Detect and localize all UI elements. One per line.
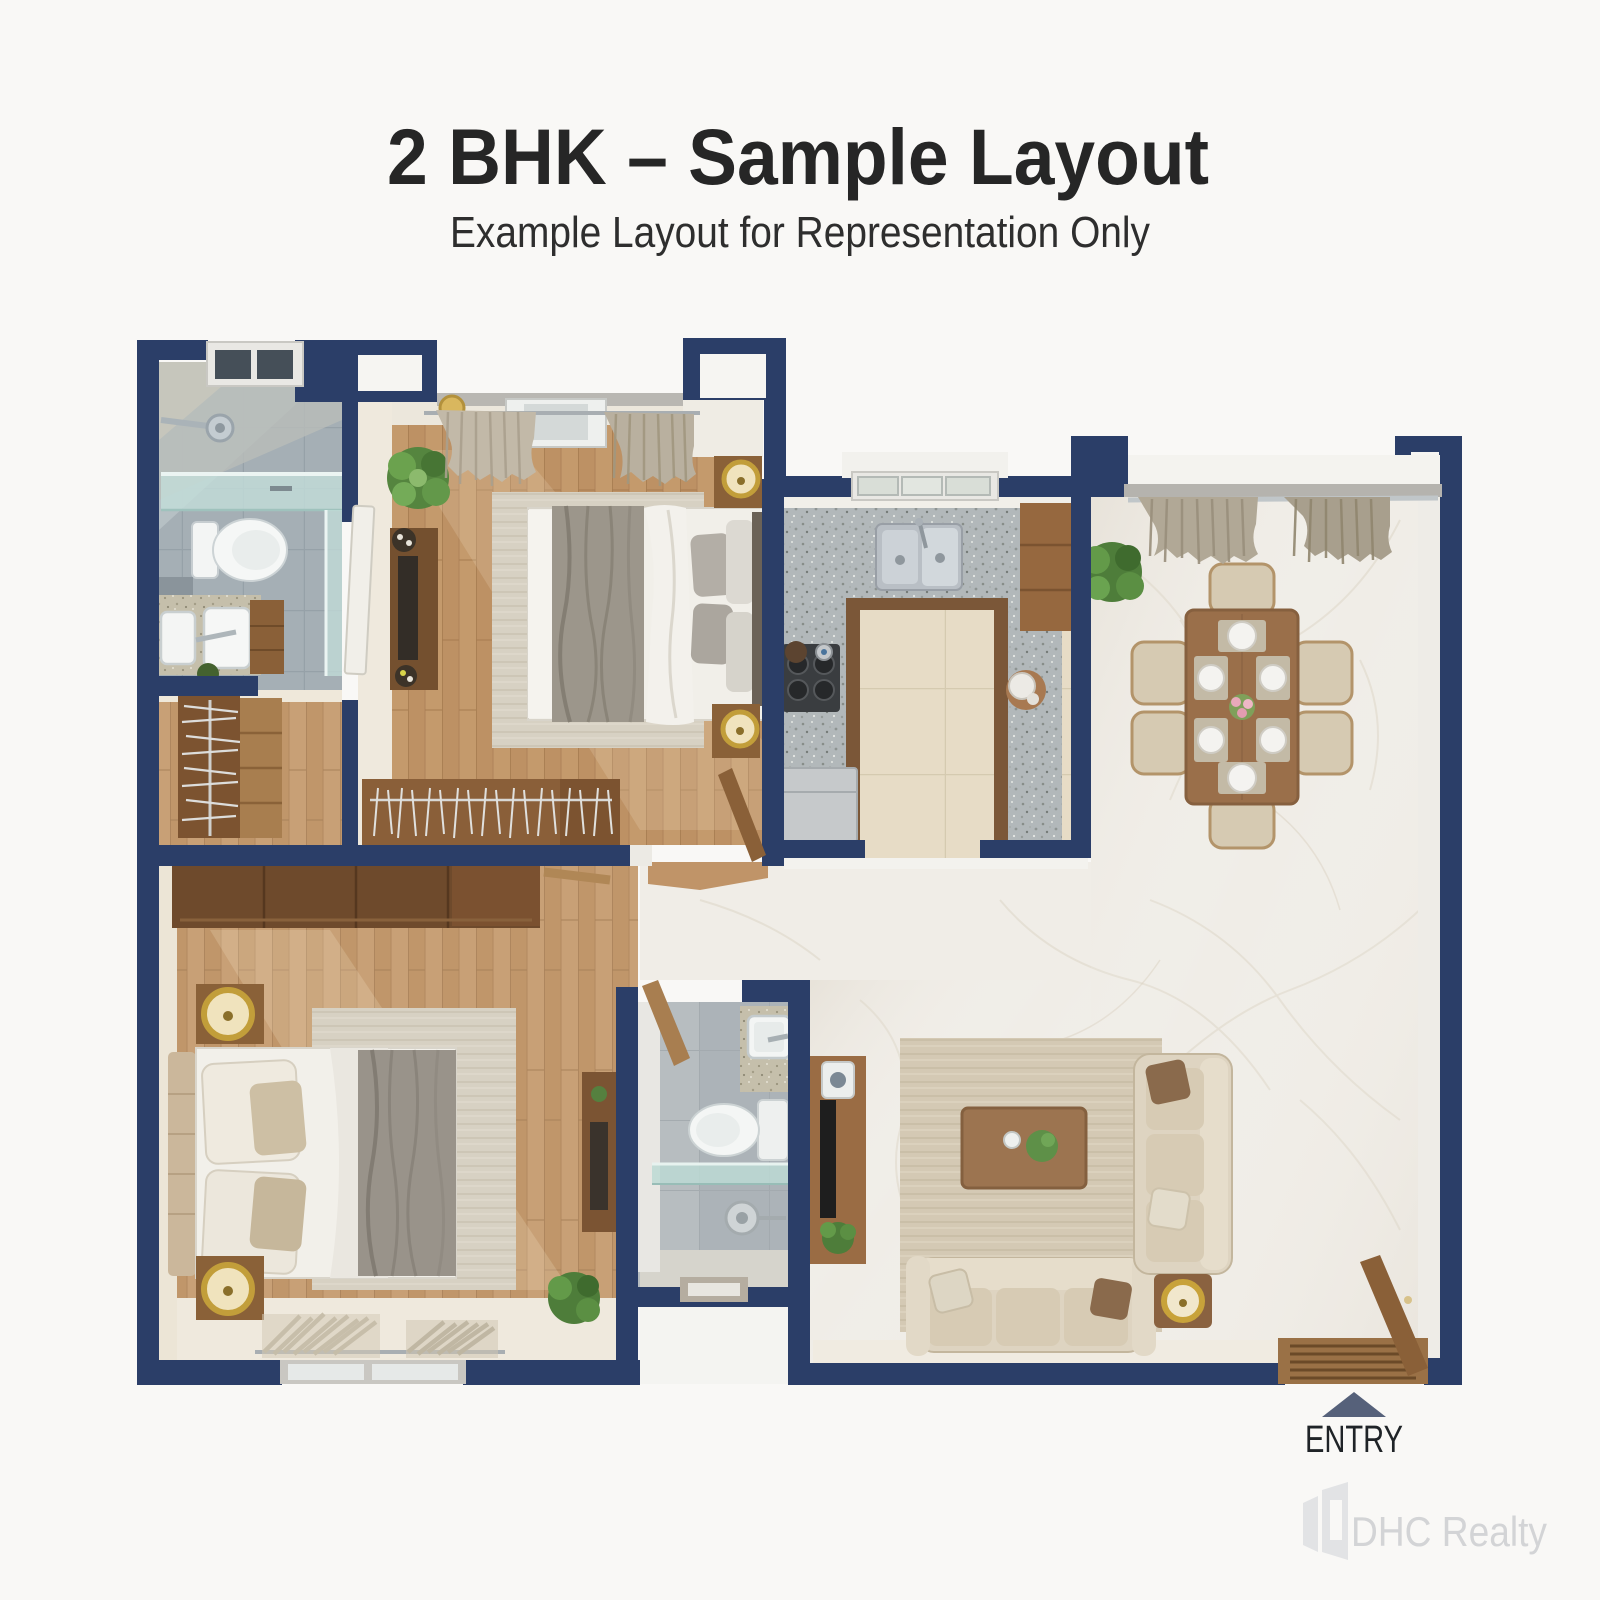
svg-text:2 BHK – Sample Layout: 2 BHK – Sample Layout	[387, 112, 1209, 201]
svg-text:DHC Realty: DHC Realty	[1351, 1508, 1547, 1555]
svg-text:Example Layout for Representat: Example Layout for Representation Only	[450, 208, 1150, 257]
svg-text:ENTRY: ENTRY	[1305, 1419, 1403, 1461]
